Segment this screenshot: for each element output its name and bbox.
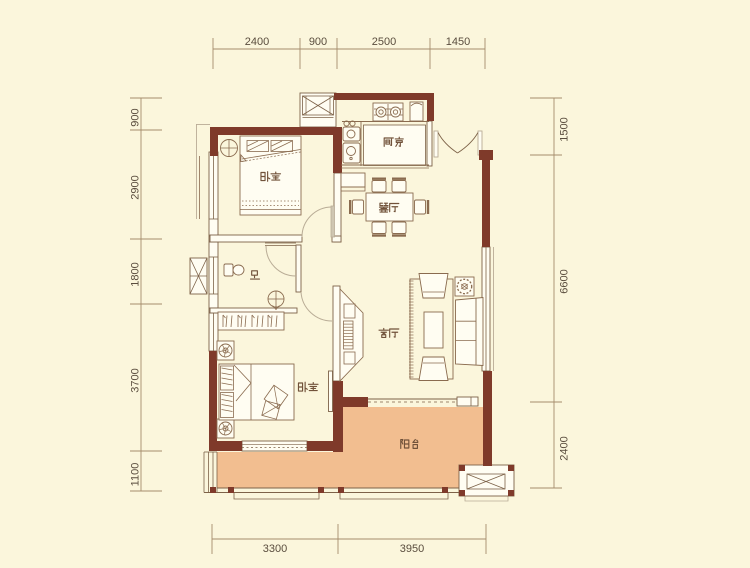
svg-text:1500: 1500 <box>559 117 571 141</box>
svg-text:2900: 2900 <box>130 175 142 199</box>
svg-text:900: 900 <box>130 108 142 126</box>
svg-text:1800: 1800 <box>130 262 142 286</box>
svg-text:3700: 3700 <box>130 368 142 392</box>
svg-text:6600: 6600 <box>559 269 571 293</box>
svg-text:3300: 3300 <box>263 543 287 555</box>
svg-text:1450: 1450 <box>446 36 470 48</box>
svg-text:3950: 3950 <box>400 543 424 555</box>
svg-text:2500: 2500 <box>372 36 396 48</box>
svg-text:1100: 1100 <box>130 463 142 487</box>
svg-text:2400: 2400 <box>245 36 269 48</box>
svg-text:2400: 2400 <box>559 436 571 460</box>
svg-text:900: 900 <box>309 36 327 48</box>
